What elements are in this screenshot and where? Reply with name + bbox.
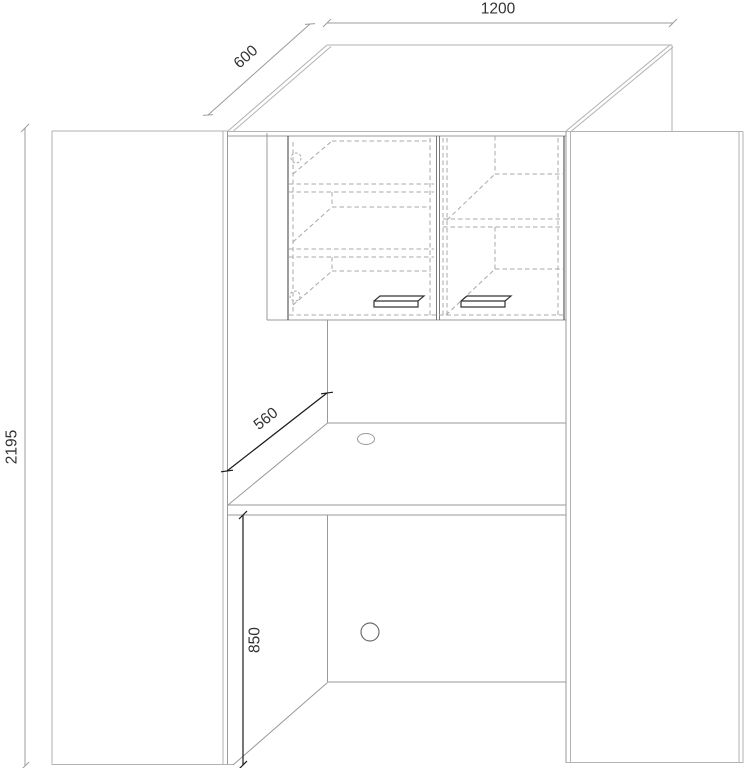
technical-drawing-canvas: 1200 600 2195 560 850	[0, 0, 744, 768]
door-handle-left	[374, 296, 424, 307]
dim-height-label: 2195	[4, 430, 21, 464]
hidden-shelf-lines-left	[289, 138, 434, 315]
knee-space	[233, 515, 566, 765]
cable-hole	[361, 623, 379, 641]
door-handle-right	[461, 296, 511, 307]
upper-cabinet-left-door	[288, 136, 440, 320]
dim-desk-depth-label: 560	[251, 404, 282, 434]
right-side-panel	[566, 132, 743, 764]
dim-width-label: 1200	[481, 1, 516, 18]
top-panel-oblique	[228, 45, 673, 131]
dimension-worktop-height: 850	[239, 511, 264, 768]
dim-depth-label: 600	[231, 42, 262, 72]
cabinet-drawing: 1200 600 2195 560 850	[0, 0, 744, 768]
hinge-icon	[290, 291, 300, 301]
dim-worktop-height-label: 850	[247, 627, 264, 653]
cable-grommet	[358, 434, 375, 445]
dimensions: 1200 600 2195 560 850	[4, 1, 678, 768]
cabinet-carcass	[228, 132, 567, 424]
left-side-panel	[52, 131, 233, 765]
desk-surface	[228, 423, 567, 515]
dimension-height: 2195	[4, 124, 30, 768]
hidden-shelf-lines-right	[443, 136, 563, 315]
upper-cabinet	[288, 136, 564, 320]
dimension-width: 1200	[323, 1, 677, 28]
upper-cabinet-right-door	[443, 136, 564, 320]
